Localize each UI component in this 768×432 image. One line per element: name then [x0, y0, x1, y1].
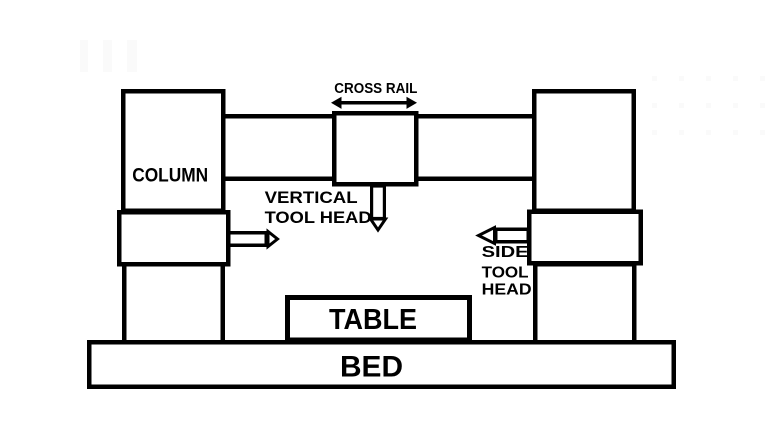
svg-text:CROSS RAIL: CROSS RAIL — [334, 81, 417, 97]
svg-text:COLUMN: COLUMN — [132, 166, 208, 187]
svg-text:TABLE: TABLE — [329, 304, 417, 336]
svg-text:TOOL HEAD: TOOL HEAD — [265, 208, 372, 227]
svg-text:HEAD: HEAD — [482, 282, 532, 299]
svg-text:VERTICAL: VERTICAL — [265, 188, 358, 207]
svg-text:TOOL: TOOL — [482, 265, 529, 282]
svg-text:SIDE: SIDE — [482, 244, 529, 261]
svg-text:BED: BED — [340, 350, 403, 383]
